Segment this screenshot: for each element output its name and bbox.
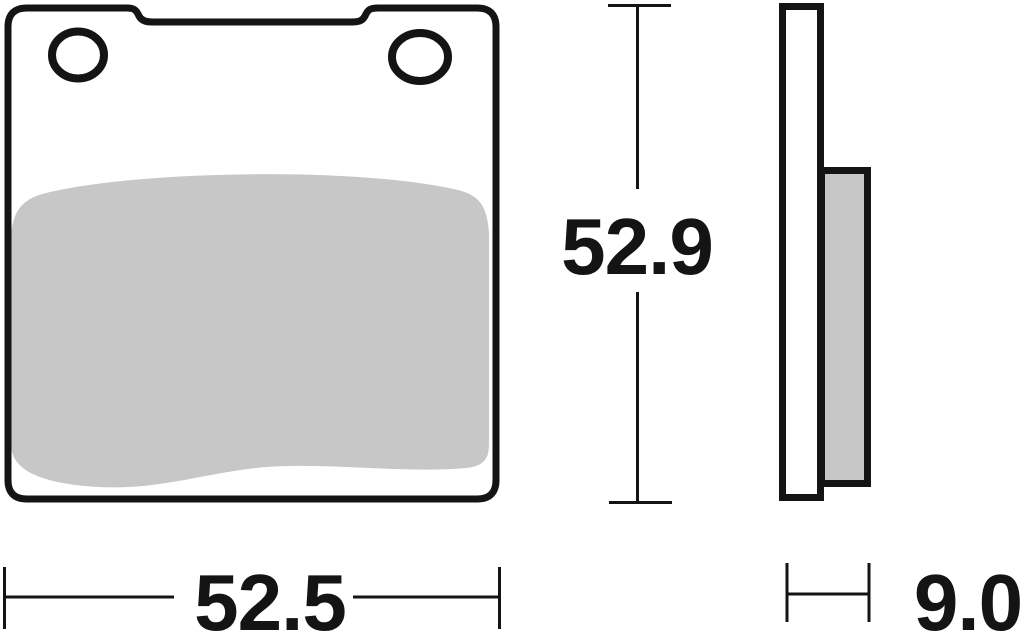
friction-material-front [11, 174, 489, 487]
dimension-height-label: 52.9 [561, 202, 713, 291]
dimension-thickness-label: 9.0 [914, 558, 1022, 633]
technical-drawing-page: 52.9 52.5 9.0 [0, 0, 1024, 633]
brake-pad-drawing: 52.9 52.5 9.0 [0, 0, 1024, 633]
side-view [783, 7, 868, 498]
mounting-hole-right-icon [392, 33, 448, 81]
backing-plate-side [783, 7, 821, 498]
friction-material-side [822, 171, 868, 484]
front-view [8, 8, 496, 499]
dimension-width-label: 52.5 [194, 558, 346, 633]
dimension-thickness [787, 563, 869, 622]
mounting-hole-left-icon [52, 32, 104, 79]
